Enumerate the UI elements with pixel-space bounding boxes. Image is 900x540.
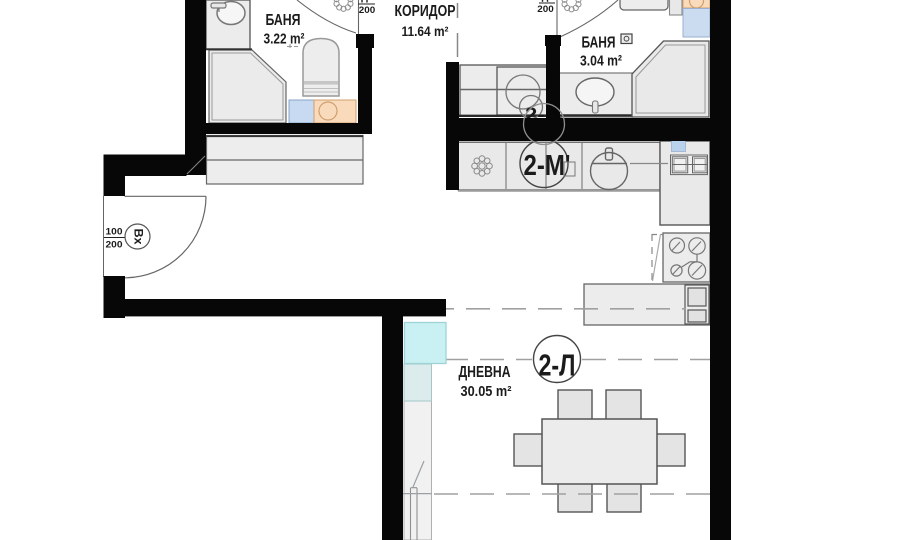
svg-text:200: 200	[106, 240, 123, 251]
svg-text:11.64 m²: 11.64 m²	[402, 23, 449, 39]
svg-text:Вх: Вх	[132, 229, 144, 246]
svg-text:2-М': 2-М'	[524, 150, 571, 182]
svg-text:200: 200	[537, 4, 554, 14]
svg-text:БАНЯ: БАНЯ	[266, 12, 301, 29]
svg-text:БАНЯ: БАНЯ	[582, 35, 616, 52]
svg-text:ДНЕВНА: ДНЕВНА	[459, 364, 511, 381]
svg-text:200: 200	[359, 5, 376, 15]
svg-text:3.04 m²: 3.04 m²	[580, 53, 622, 70]
svg-text:2-Л: 2-Л	[539, 348, 576, 383]
svg-text:КОРИДОР: КОРИДОР	[395, 3, 456, 20]
svg-text:30.05 m²: 30.05 m²	[461, 384, 512, 400]
svg-text:3.22 m²: 3.22 m²	[264, 31, 305, 48]
svg-text:100: 100	[106, 227, 123, 238]
